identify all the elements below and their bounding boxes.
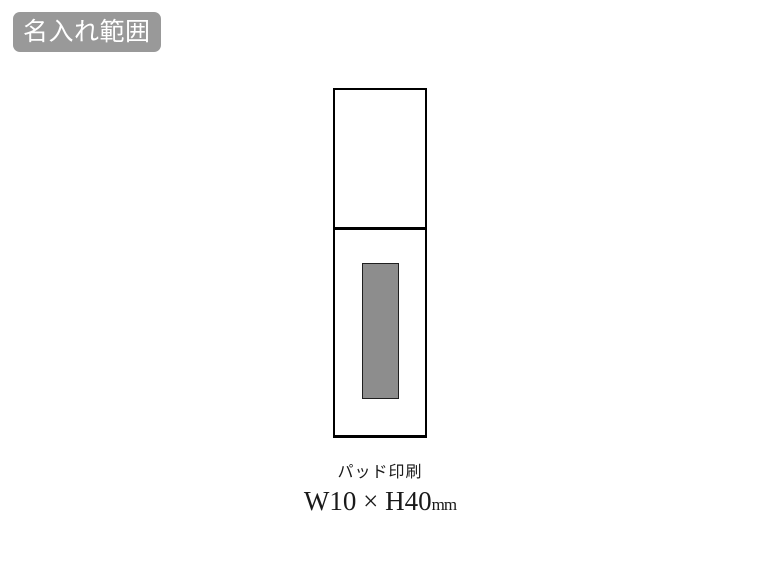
print-method-label: パッド印刷 [230,462,530,484]
cap-divider-line [335,227,425,230]
product-outline [333,88,427,438]
print-size-unit: mm [432,495,456,514]
caption: パッド印刷 W10 × H40mm [230,462,530,520]
imprint-area-rect [362,263,399,399]
print-size-label: W10 × H40mm [230,486,530,520]
imprint-range-badge: 名入れ範囲 [13,12,161,52]
imprint-area-diagram-canvas: 名入れ範囲 パッド印刷 W10 × H40mm [0,0,760,570]
print-size-value: W10 × H40 [304,486,432,516]
